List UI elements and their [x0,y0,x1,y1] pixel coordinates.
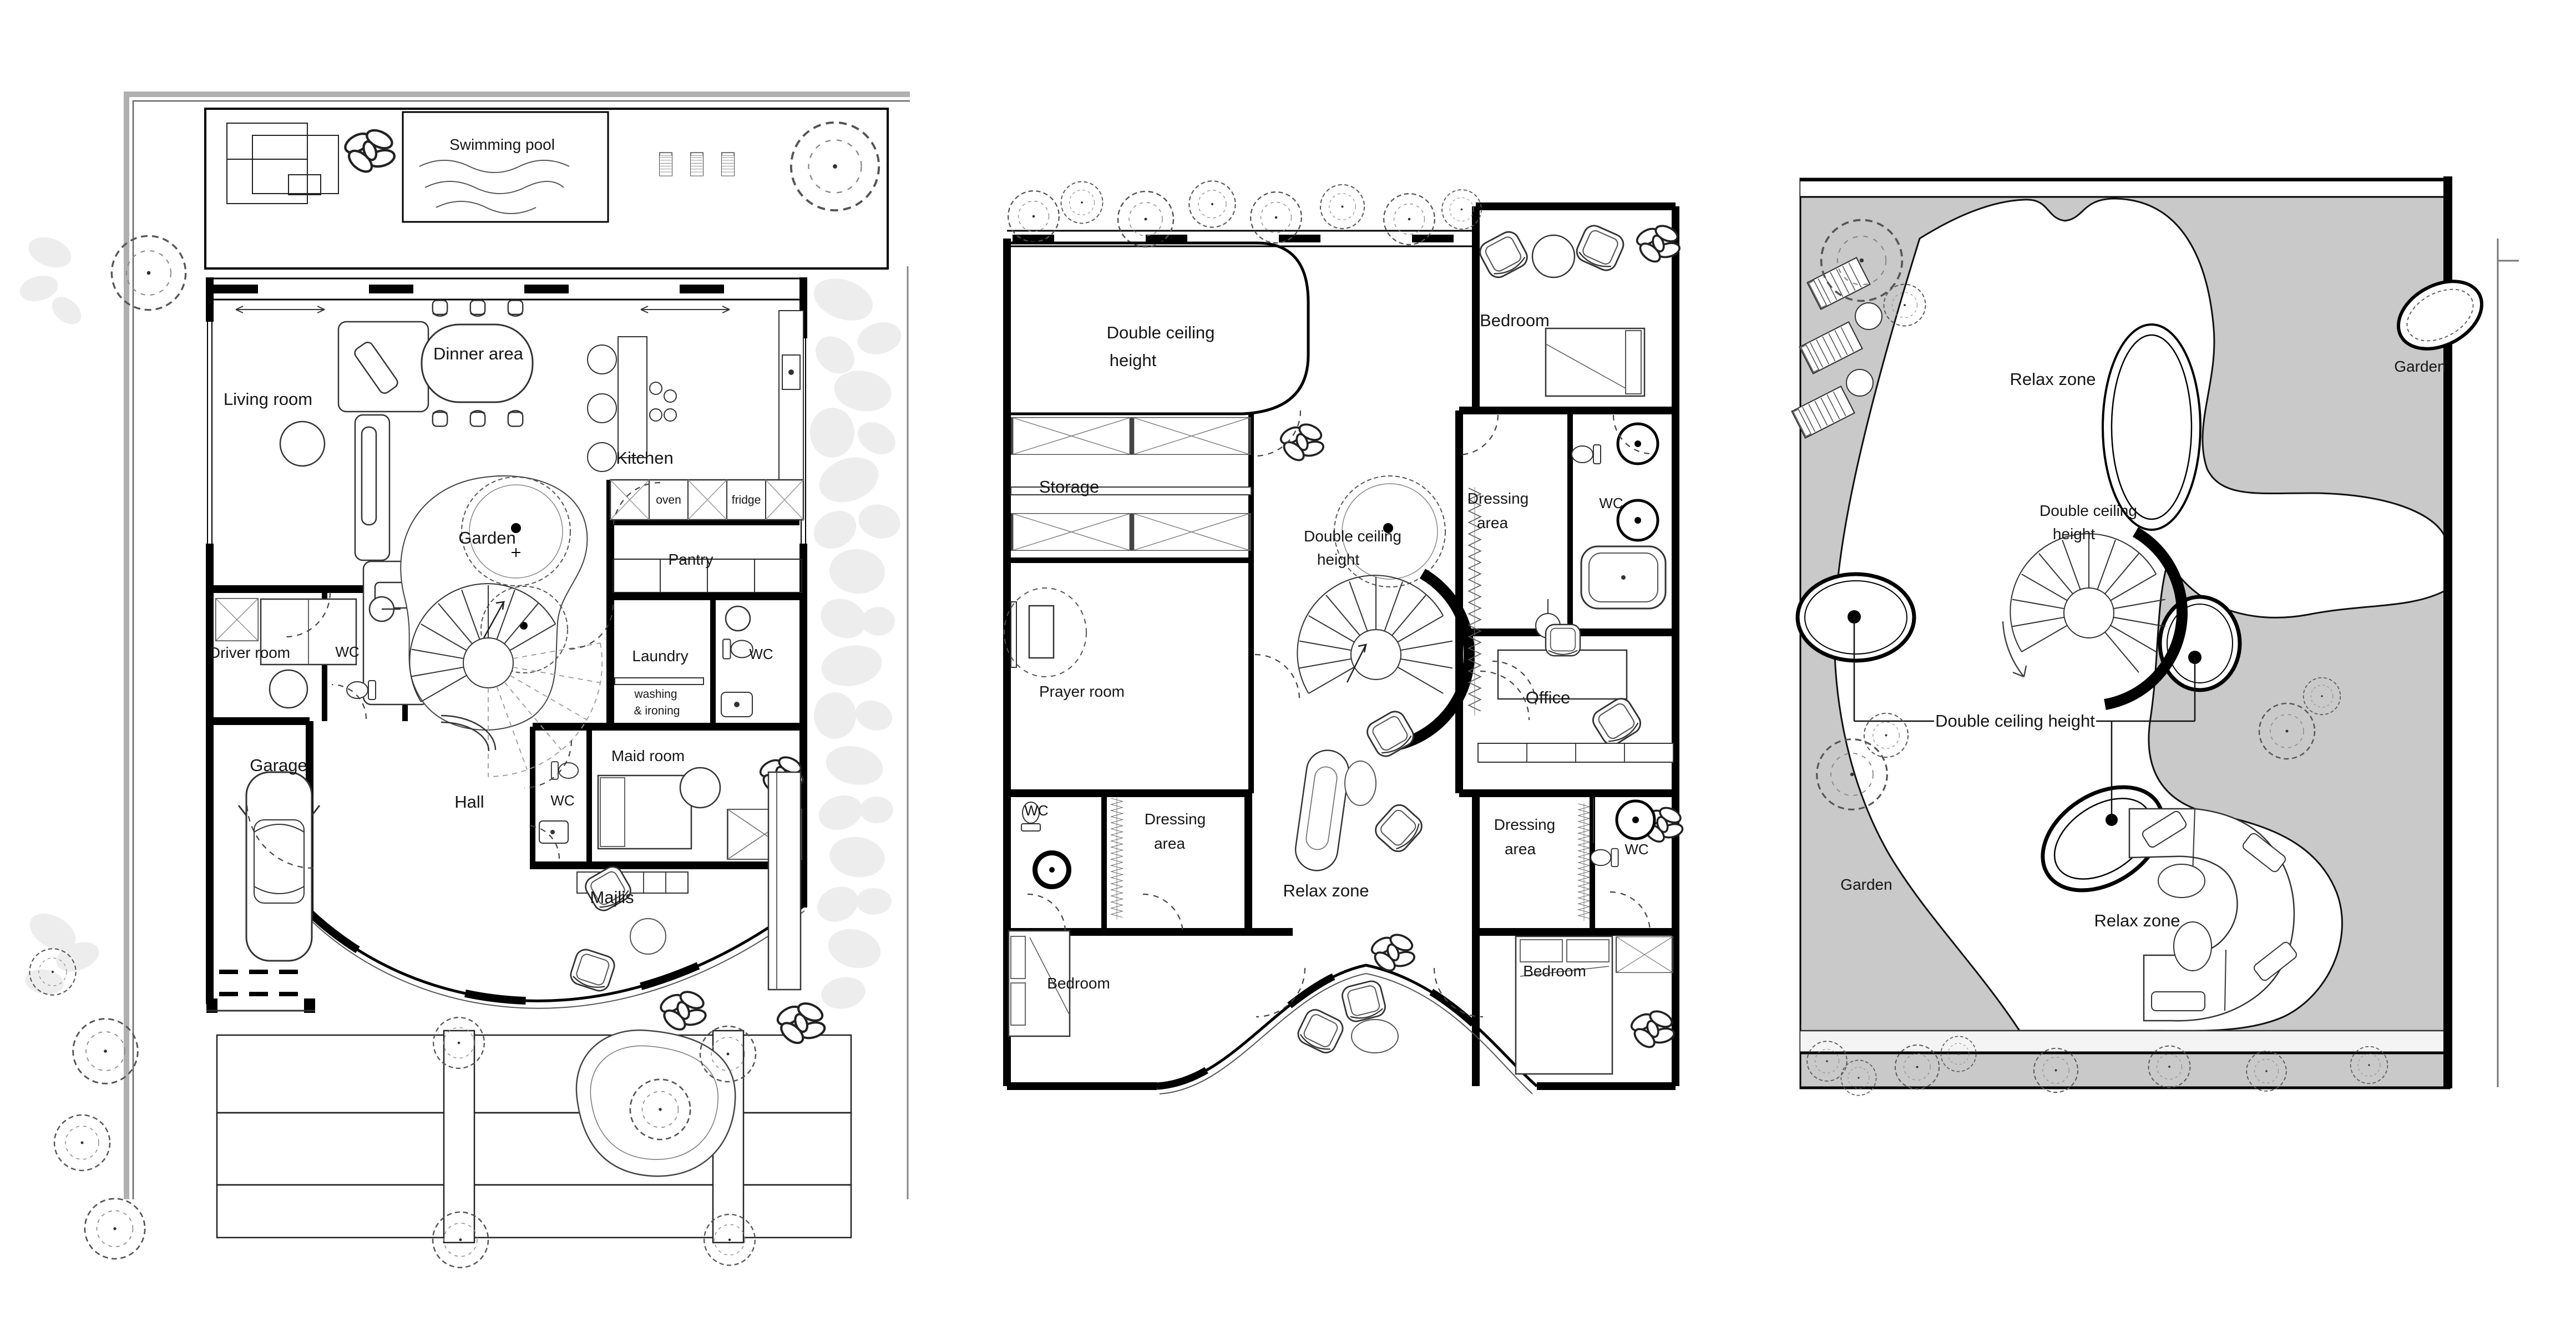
plan2-doors [1028,410,1652,1017]
label-oven: oven [656,494,681,506]
label-hall: Hall [454,792,484,812]
tree-icon [1189,181,1235,227]
label-double-ceiling-1: Double ceiling [1107,323,1215,342]
sun-lounger-icon [660,153,672,176]
label-driver-room: Driver room [209,644,290,661]
label-bedroom-top: Bedroom [1480,311,1550,330]
label-majlis: Majlis [590,888,634,907]
plan-roof: Relax zone Garden Double ceiling height … [1791,176,2519,1096]
label-pantry: Pantry [669,551,713,568]
label-dressing-left-2: area [1154,835,1185,852]
garage-door [206,972,315,1013]
floor-plan-sheet: Swimming pool Living room Dinner area Ki… [0,0,2576,1318]
bedroom-top-furniture [1476,222,1681,396]
label-kitchen: Kitchen [616,448,673,468]
label-wc-right: WC [1624,841,1648,858]
dinner-area-furniture [422,301,533,427]
sliding-arrow-icon [236,306,325,313]
label-dressing-top-2: area [1477,514,1508,531]
tree-icon [1061,182,1103,224]
label-relax-zone-top: Relax zone [2010,369,2096,389]
label-garden: Garden [458,528,515,548]
closet-zigzag [1578,803,1590,921]
label-dressing-left-1: Dressing [1145,810,1206,828]
label-garden-top: Garden [2394,358,2446,375]
label-stair-double-2: height [1317,551,1360,568]
plan-ground-floor: Swimming pool Living room Dinner area Ki… [17,94,910,1268]
tree-icon [54,1115,110,1170]
tree-icon [85,1199,145,1259]
label-fridge: fridge [732,494,761,506]
label-dressing-right-1: Dressing [1494,816,1555,833]
label-laundry: Laundry [632,647,688,665]
plan2-curved-glass [1157,965,1537,1094]
plan1-terrace [217,1031,851,1243]
label-office: Office [1526,688,1570,707]
label-relax-zone: Relax zone [1283,881,1369,900]
sliding-arrow-icon [641,306,730,313]
label-roof-double-2: height [2053,525,2096,543]
label-garage: Garage [250,756,307,775]
label-washing-1: washing [634,688,677,701]
spiral-stair-first [1297,476,1469,746]
tree-icon [112,236,185,310]
tree-icon [1320,185,1364,229]
appliance-strip [610,480,803,520]
label-relax-zone-bottom: Relax zone [2094,911,2180,930]
label-washing-2: & ironing [634,704,680,717]
label-garden-bottom: Garden [1840,876,1892,893]
label-dressing-top-1: Dressing [1467,490,1529,507]
sun-lounger-icon [722,153,735,176]
prayer-room-furniture [1004,588,1086,677]
plant-icon [1278,422,1325,464]
closet-zigzag [1111,798,1122,920]
label-dinner-area: Dinner area [433,344,524,363]
label-double-ceiling-2: height [1110,351,1157,370]
plan1-pond [576,1030,735,1176]
plan1-pool-terrace [205,109,888,268]
plan1-curved-glass [310,903,804,1008]
label-roof-double-1: Double ceiling [2039,502,2137,519]
label-wc-top: WC [1599,495,1623,511]
label-living-room: Living room [224,389,312,409]
floor-plans-drawing: Swimming pool Living room Dinner area Ki… [0,0,2576,1318]
label-dressing-right-2: area [1505,840,1536,858]
sun-lounger-icon [691,153,704,176]
label-stair-double-1: Double ceiling [1304,528,1401,545]
car-icon [239,772,320,961]
label-wc-maid: WC [550,792,574,809]
swimming-pool [403,112,608,222]
label-prayer-room: Prayer room [1039,683,1125,700]
label-wc-driver: WC [335,643,359,660]
tree-icon [1008,191,1059,242]
plant-icon [775,1000,826,1047]
label-storage: Storage [1039,477,1100,496]
label-bedroom-br: Bedroom [1523,962,1586,980]
label-swimming-pool: Swimming pool [449,136,555,153]
label-wc-laundry: WC [749,646,773,662]
indoor-garden [401,476,587,730]
wc-top-fixtures [1536,424,1666,638]
label-bedroom-bl: Bedroom [1047,975,1110,992]
bedroom-bottom-right-furniture [1516,936,1676,1074]
label-wc-left: WC [1024,802,1048,819]
plan-first-floor: Double ceiling height Bedroom Storage Dr… [1004,181,1684,1094]
label-double-ceiling-callout: Double ceiling height [1935,711,2095,731]
label-maid-room: Maid room [611,747,685,764]
